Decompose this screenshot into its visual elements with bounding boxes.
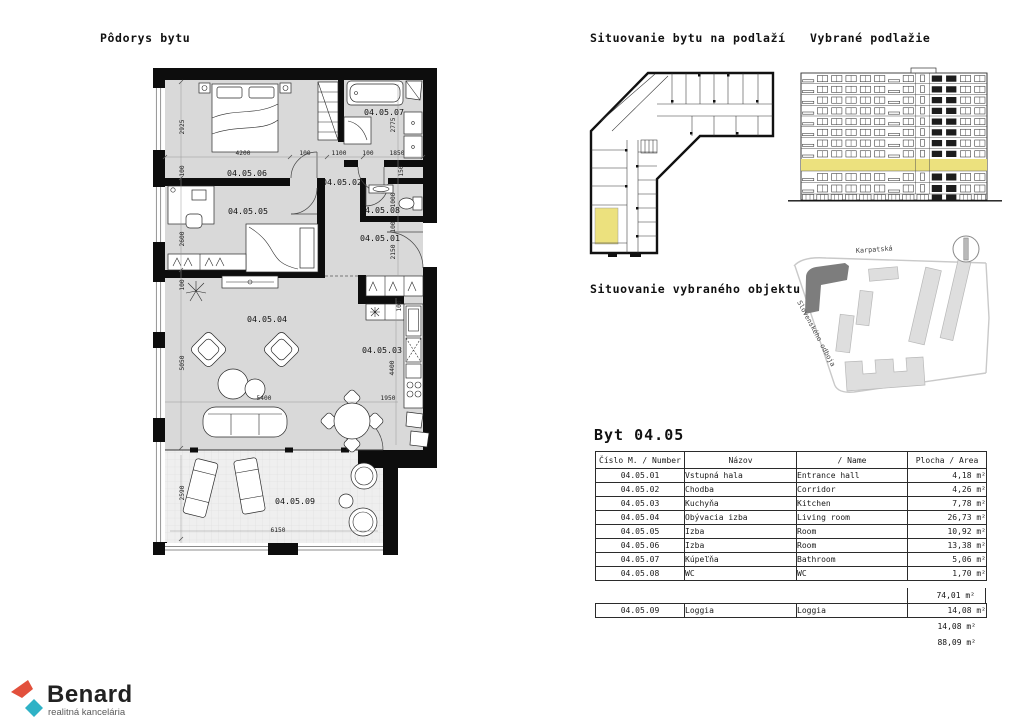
room-number: 04.05.09 — [596, 604, 685, 618]
hall-wardrobe-icon — [366, 276, 423, 296]
subtotal-rooms-row: 74,01 m² — [595, 588, 986, 603]
desk-icon — [168, 186, 214, 228]
room-area: 5,06 m² — [908, 553, 987, 567]
floor-situation-title: Situovanie bytu na podlaží — [590, 31, 786, 45]
elevation-drawing — [790, 60, 1010, 210]
svg-text:2775: 2775 — [390, 117, 397, 132]
room-area: 13,38 m² — [908, 539, 987, 553]
highlighted-floor-band — [801, 159, 987, 171]
svg-text:2925: 2925 — [179, 119, 186, 134]
col-header-name-en: / Name — [797, 452, 908, 469]
subtotal-rooms-value: 74,01 m² — [907, 588, 986, 603]
room-name-sk: Chodba — [685, 483, 797, 497]
toilet-icon — [399, 197, 422, 210]
room-name-sk: Loggia — [685, 604, 797, 618]
highlighted-unit — [595, 208, 618, 244]
table-row: 04.05.04Obývacia izbaLiving room26,73 m² — [596, 511, 987, 525]
room-name-sk: Obývacia izba — [685, 511, 797, 525]
col-header-area: Plocha / Area — [908, 452, 987, 469]
table-row: 04.05.08WCWC1,70 m² — [596, 567, 987, 581]
room-name-en: Entrance hall — [797, 469, 908, 483]
shower-icon — [344, 117, 371, 144]
svg-text:100: 100 — [390, 221, 397, 232]
room-area: 4,18 m² — [908, 469, 987, 483]
svg-text:5050: 5050 — [179, 355, 186, 370]
table-row: 04.05.02ChodbaCorridor4,26 m² — [596, 483, 987, 497]
floorplan-drawing: 2925 4200 100 100 1100 100 1850 2775 150… — [150, 60, 445, 560]
svg-text:100: 100 — [396, 300, 403, 311]
wc-sink-icon — [369, 185, 393, 193]
svg-text:04.05.06: 04.05.06 — [227, 168, 267, 178]
table-row: 04.05.09 Loggia Loggia 14,08 m² — [596, 604, 987, 618]
room-number: 04.05.02 — [596, 483, 685, 497]
logo-brand-text: Benard — [47, 681, 133, 709]
room-area: 26,73 m² — [908, 511, 987, 525]
room-area: 4,26 m² — [908, 483, 987, 497]
svg-text:150: 150 — [398, 165, 405, 176]
logo-teal-shape — [25, 699, 43, 717]
room-name-en: Corridor — [797, 483, 908, 497]
svg-text:2600: 2600 — [179, 231, 186, 246]
subtotal-loggia-value: 14,08 m² — [595, 622, 986, 631]
floorplan-title: Pôdorys bytu — [100, 31, 190, 45]
table-row: 04.05.01Vstupná halaEntrance hall4,18 m² — [596, 469, 987, 483]
logo-tagline-text: realitná kancelária — [48, 707, 125, 718]
room-name-en: Loggia — [797, 604, 908, 618]
street-label-karpatska: Karpatská — [856, 244, 893, 255]
room-number: 04.05.04 — [596, 511, 685, 525]
svg-text:2590: 2590 — [179, 485, 186, 500]
svg-text:100: 100 — [179, 165, 186, 176]
room-name-en: Kitchen — [797, 497, 908, 511]
svg-text:4400: 4400 — [389, 360, 396, 375]
svg-text:100: 100 — [299, 150, 310, 157]
svg-text:100: 100 — [362, 150, 373, 157]
room-name-sk: Kuchyňa — [685, 497, 797, 511]
site-buildings — [836, 260, 971, 391]
object-situation-title: Situovanie vybraného objektu — [590, 282, 801, 296]
selected-building — [805, 263, 849, 314]
svg-text:04.05.08: 04.05.08 — [360, 205, 400, 215]
table-row: 04.05.05IzbaRoom10,92 m² — [596, 525, 987, 539]
room-number: 04.05.03 — [596, 497, 685, 511]
svg-text:04.05.03: 04.05.03 — [362, 345, 402, 355]
room-name-sk: Vstupná hala — [685, 469, 797, 483]
bathtub-icon — [347, 81, 403, 105]
north-compass-icon — [953, 236, 979, 262]
selected-floor-title: Vybrané podlažie — [810, 31, 930, 45]
logo-red-shape — [11, 680, 33, 698]
table-row: 04.05.06IzbaRoom13,38 m² — [596, 539, 987, 553]
col-header-number: Číslo M. / Number — [596, 452, 685, 469]
wardrobe-icon — [318, 82, 338, 140]
svg-text:2150: 2150 — [390, 244, 397, 259]
room-number: 04.05.05 — [596, 525, 685, 539]
room-number: 04.05.07 — [596, 553, 685, 567]
sideboard-icon — [222, 276, 278, 288]
apartment-id-title: Byt 04.05 — [594, 426, 684, 444]
sofa-icon — [203, 407, 287, 437]
room-name-en: WC — [797, 567, 908, 581]
room-name-sk: Izba — [685, 525, 797, 539]
svg-text:5400: 5400 — [257, 395, 272, 402]
table-row: 04.05.07KúpeľňaBathroom5,06 m² — [596, 553, 987, 567]
room-name-sk: WC — [685, 567, 797, 581]
room-name-sk: Kúpeľňa — [685, 553, 797, 567]
room-name-en: Living room — [797, 511, 908, 525]
room-number: 04.05.08 — [596, 567, 685, 581]
loggia-table: 04.05.09 Loggia Loggia 14,08 m² — [595, 603, 987, 618]
svg-text:1950: 1950 — [381, 395, 396, 402]
room-number: 04.05.01 — [596, 469, 685, 483]
room-name-en: Room — [797, 539, 908, 553]
svg-text:04.05.05: 04.05.05 — [228, 206, 268, 216]
svg-text:04.05.02: 04.05.02 — [322, 177, 362, 187]
room-area: 10,92 m² — [908, 525, 987, 539]
table-header-row: Číslo M. / Number Názov / Name Plocha / … — [596, 452, 987, 469]
room-area: 1,70 m² — [908, 567, 987, 581]
site-map-drawing: Karpatská Slovenského odboja — [790, 225, 1010, 410]
svg-text:100: 100 — [179, 279, 186, 290]
svg-text:04.05.07: 04.05.07 — [364, 107, 404, 117]
room5-closet-icon — [168, 254, 246, 270]
table-row: 04.05.03KuchyňaKitchen7,78 m² — [596, 497, 987, 511]
floor-situation-drawing — [585, 55, 790, 270]
shaft-icon — [406, 81, 422, 100]
room-name-en: Room — [797, 525, 908, 539]
total-area-value: 88,09 m² — [595, 638, 986, 647]
room-area: 14,08 m² — [908, 604, 987, 618]
room-area-table: Číslo M. / Number Názov / Name Plocha / … — [595, 451, 987, 581]
svg-text:1850: 1850 — [390, 150, 405, 157]
svg-text:04.05.04: 04.05.04 — [247, 314, 287, 324]
room-number: 04.05.06 — [596, 539, 685, 553]
room-area: 7,78 m² — [908, 497, 987, 511]
room-name-sk: Izba — [685, 539, 797, 553]
svg-text:1100: 1100 — [332, 150, 347, 157]
real-estate-sheet: Pôdorys bytu Situovanie bytu na podlaží … — [0, 0, 1024, 724]
svg-text:04.05.09: 04.05.09 — [275, 496, 315, 506]
bed-single-icon — [246, 224, 318, 272]
svg-text:04.05.01: 04.05.01 — [360, 233, 400, 243]
col-header-name-sk: Názov — [685, 452, 797, 469]
benard-logo-mark — [11, 679, 47, 719]
svg-text:4200: 4200 — [236, 150, 251, 157]
bed-double-icon — [199, 83, 291, 152]
svg-text:6150: 6150 — [271, 527, 286, 534]
room-name-en: Bathroom — [797, 553, 908, 567]
